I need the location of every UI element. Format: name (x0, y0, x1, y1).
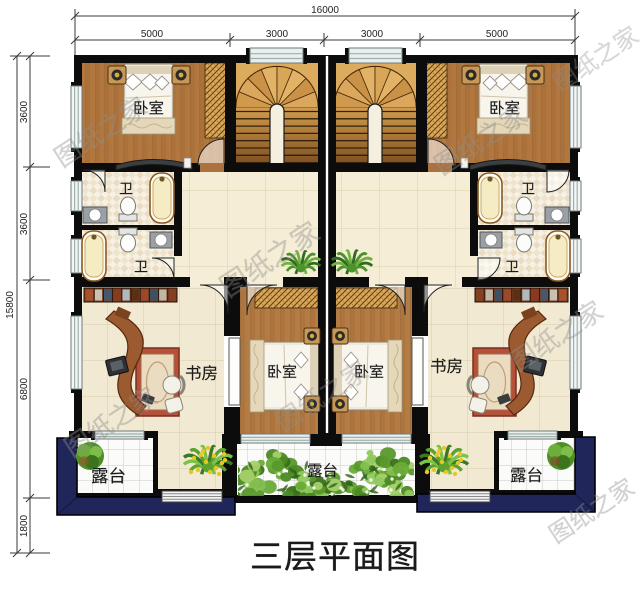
svg-text:3600: 3600 (19, 100, 30, 123)
svg-text:16000: 16000 (311, 5, 339, 16)
svg-text:1800: 1800 (19, 514, 30, 537)
svg-text:5000: 5000 (141, 29, 164, 40)
svg-text:3000: 3000 (361, 29, 384, 40)
svg-text:5000: 5000 (486, 29, 509, 40)
svg-text:3000: 3000 (266, 29, 289, 40)
svg-text:6800: 6800 (19, 377, 30, 400)
svg-text:3600: 3600 (19, 212, 30, 235)
svg-text:15800: 15800 (5, 291, 16, 319)
